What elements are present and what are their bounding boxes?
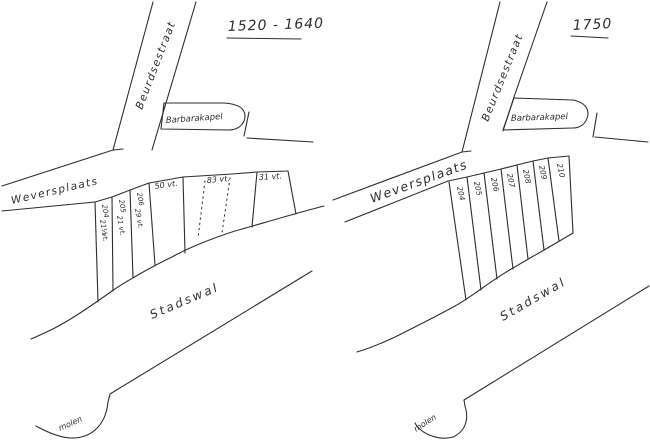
plot-205-206-divider [130, 190, 133, 277]
stadswal-label: Stadswal [148, 280, 222, 322]
plot-205-number: 205 [117, 199, 127, 214]
plot-206-width: 29 [133, 208, 143, 219]
plot-206-unit: vt. [135, 219, 144, 229]
plot-205-unit: vt. [117, 226, 126, 236]
plot-206-number: 206 [489, 177, 501, 193]
side-street-line [247, 138, 313, 142]
plot-210-right-edge [569, 156, 573, 233]
weversplaats-top-edge [2, 149, 123, 186]
plot-83vt-31vt-divider [252, 172, 257, 227]
plot-206-number: 206 [135, 192, 145, 207]
plot-205-width: 21 [115, 215, 124, 225]
beurdsestraat-label: Beurdsestraat [134, 19, 179, 111]
plot-210-number: 210 [555, 163, 567, 179]
molen-label: molen [57, 414, 83, 432]
map-drawing-1520-1640: 1520 - 1640 Beurdsestraat Weversplaats B… [0, 0, 325, 442]
map-drawing-1750: 1750 Beurdsestraat Weversplaats Barbarak… [325, 0, 650, 442]
plot-83vt-label: 83 vt. [206, 174, 230, 185]
weversplaats-label: Weversplaats [10, 175, 100, 207]
plot-204-number: 204 [100, 204, 110, 219]
barbarakapel-label: Barbarakapel [511, 112, 569, 124]
plot-31vt-right-edge [288, 171, 296, 214]
title-underline [227, 38, 301, 39]
side-street-line [595, 137, 648, 142]
molen-label: molen [412, 413, 438, 434]
plot-208-number: 208 [521, 169, 533, 185]
plot-50vt-83vt-divider [183, 177, 185, 253]
barbarakapel-label: Barbarakapel [166, 112, 224, 126]
map-title: 1750 [572, 16, 612, 34]
title-underline [571, 36, 608, 38]
plot-205-number: 205 [472, 181, 484, 197]
hand-drawn-cadastral-maps: 1520 - 1640 Beurdsestraat Weversplaats B… [0, 0, 650, 442]
former-plot-dotted-divider-2 [222, 178, 230, 233]
side-street-stroke [593, 113, 597, 137]
stadswal-upper-line [31, 206, 324, 339]
plot-204-unit: vt. [100, 232, 109, 242]
panel-map-1750: 1750 Beurdsestraat Weversplaats Barbarak… [325, 0, 650, 442]
panel-map-1520-1640: 1520 - 1640 Beurdsestraat Weversplaats B… [0, 0, 325, 442]
stadswal-lower-line-with-molen [36, 271, 312, 438]
beurdsestraat-label: Beurdsestraat [480, 32, 526, 123]
plot-204-left-edge [95, 202, 98, 302]
plot-209-number: 209 [537, 165, 549, 181]
plot-31vt-label: 31 vt. [259, 171, 283, 182]
beurdsestraat-left-edge [462, 2, 500, 152]
former-plot-dotted-divider-1 [198, 181, 205, 238]
plot-50vt-label: 50 vt. [154, 179, 178, 191]
plot-204-205-divider [112, 197, 113, 291]
plot-206-50vt-divider [149, 183, 155, 265]
map-title: 1520 - 1640 [228, 16, 325, 35]
plot-207-number: 207 [505, 173, 517, 189]
stadswal-label: Stadswal [498, 274, 569, 323]
plot-204-number: 204 [455, 186, 467, 202]
